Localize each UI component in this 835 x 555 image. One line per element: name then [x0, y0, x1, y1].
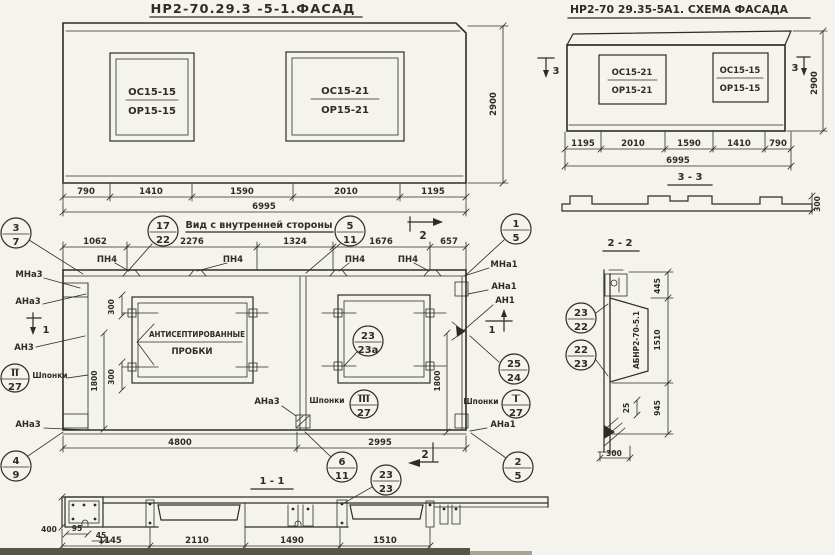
plug-note: АНТИСЕПТИРОВАННЫЕ: [149, 330, 245, 339]
window-code: ОР15-15: [128, 106, 176, 117]
section-label: 2 - 2: [607, 238, 632, 249]
section-label: 3 - 3: [677, 172, 702, 183]
shponki-label: Шпонки: [309, 396, 344, 405]
dim-label: 300: [107, 299, 116, 315]
dim-label: 1800: [433, 371, 442, 392]
window-code: ОР15-15: [720, 84, 761, 94]
dim-label: 1510: [653, 330, 662, 351]
callout-num: 4: [13, 456, 20, 467]
dim-label: 1195: [421, 187, 445, 197]
anchor-label: АНа1: [491, 282, 516, 292]
dim-label: 1490: [280, 536, 304, 546]
dim-label: 790: [769, 139, 787, 149]
rebar-dot: [341, 522, 344, 525]
inner-view-title: Вид с внутренней стороны: [186, 220, 333, 231]
callout-num: 27: [8, 382, 22, 393]
anchor-label: МНа1: [490, 260, 517, 270]
rebar-dot: [455, 508, 458, 511]
callout-num: 3: [13, 223, 20, 234]
callout-num: 2: [515, 457, 522, 468]
dim-label: 1800: [90, 371, 99, 392]
rebar-dot: [94, 518, 97, 521]
facade-schema-title: НР2-70 29.35-5А1. СХЕМА ФАСАДА: [570, 4, 789, 16]
rebar-dot: [72, 504, 75, 507]
dim-label: 6995: [666, 156, 690, 166]
dim-label: 25: [622, 403, 631, 413]
dim-label: 1145: [98, 536, 122, 546]
window-code: ОС15-21: [612, 68, 653, 78]
plug-note: ПРОБКИ: [171, 347, 212, 357]
anchor-label: АНа1: [490, 420, 515, 430]
dim-label: 300: [813, 196, 822, 212]
rebar-dot: [149, 522, 152, 525]
dim-label: 2900: [810, 71, 820, 95]
callout-num: 24: [507, 373, 521, 384]
callout-num: 9: [13, 470, 20, 481]
callout-num: 11: [335, 471, 349, 482]
dim-label: 4800: [168, 438, 192, 448]
cut-label: 1: [489, 325, 496, 336]
callout-num: 5: [347, 221, 354, 232]
cut-label: 1: [43, 325, 50, 336]
dim-label: 400: [41, 525, 57, 534]
scan-band-light: [470, 551, 532, 555]
callout-num: 23: [379, 484, 393, 495]
rebar-dot: [292, 508, 295, 511]
window-code: ОС15-21: [321, 86, 369, 97]
rebar-dot: [443, 508, 446, 511]
cut-label: 3: [553, 66, 560, 77]
callout-num: 5: [515, 471, 522, 482]
dim-label: 1324: [283, 237, 307, 247]
dim-label: 2110: [185, 536, 209, 546]
callout-num: 23: [361, 331, 375, 342]
dim-label: 657: [440, 237, 458, 247]
dim-label: 790: [77, 187, 95, 197]
dim-label: 95: [72, 524, 82, 533]
dim-label: 2900: [489, 92, 499, 116]
anchor-label: АН1: [495, 296, 515, 306]
callout-num: 23: [574, 359, 588, 370]
dim-label: 300: [107, 369, 116, 385]
callout-num: 25: [507, 359, 521, 370]
callout-num: 7: [13, 237, 20, 248]
rebar-dot: [94, 504, 97, 507]
dim-label: 445: [653, 278, 662, 294]
dim-label: 1410: [139, 187, 163, 197]
callout-num: 27: [509, 408, 523, 419]
scan-band-dark: [0, 548, 470, 555]
dim-label: 2276: [180, 237, 204, 247]
callout-num: 22: [574, 322, 588, 333]
dim-label: 1510: [373, 536, 397, 546]
dim-label: 1676: [369, 237, 393, 247]
rebar-dot: [341, 503, 344, 506]
window-code: ОР15-21: [321, 105, 369, 116]
dim-label: 1590: [230, 187, 254, 197]
anchor-label: АНа3: [254, 397, 279, 407]
anchor-label: МНа3: [15, 270, 42, 280]
window-code: ОС15-15: [720, 66, 761, 76]
dim-label: 1062: [83, 237, 107, 247]
cut-label: 3: [792, 63, 799, 74]
anchor-label: АН3: [14, 343, 34, 353]
dim-label: 2010: [334, 187, 358, 197]
dim-label: 6995: [252, 202, 276, 212]
dim-label: 1590: [677, 139, 701, 149]
cut-label: 2: [421, 449, 428, 461]
rebar-dot: [149, 503, 152, 506]
dim-label: 1195: [571, 139, 595, 149]
callout-num: 1: [513, 219, 520, 230]
drawing-sheet: НР2-70.29.3 -5-1.ФАСАД ОС15-15 ОР15-15 О…: [0, 0, 835, 555]
callout-num: 6: [339, 457, 346, 468]
blueprint-canvas: НР2-70.29.3 -5-1.ФАСАД ОС15-15 ОР15-15 О…: [0, 0, 835, 555]
section-label: 1 - 1: [259, 476, 284, 487]
dim-label: 300: [606, 449, 622, 458]
callout-num: 27: [357, 408, 371, 419]
paper-background: [0, 0, 835, 555]
callout-num: 22: [156, 235, 170, 246]
callout-num: II: [11, 368, 18, 379]
callout-num: 23: [379, 470, 393, 481]
rebar-dot: [429, 504, 432, 507]
loop-label: ПН4: [97, 255, 117, 265]
callout-num: 17: [156, 221, 170, 232]
window-code: ОС15-15: [128, 87, 176, 98]
anchor-label: АНа3: [15, 420, 40, 430]
cut-label: 2: [419, 230, 426, 242]
rebar-dot: [72, 518, 75, 521]
callout-num: III: [358, 394, 369, 405]
callout-num: I: [514, 394, 518, 405]
callout-num: 23: [574, 308, 588, 319]
facade-left-title: НР2-70.29.3 -5-1.ФАСАД: [151, 2, 356, 16]
anchor-label: АНа3: [15, 297, 40, 307]
callout-num: 22: [574, 345, 588, 356]
window-code: ОР15-21: [612, 86, 653, 96]
callout-num: 23а: [358, 345, 379, 356]
part-label: АБНР2-70-5.1: [632, 311, 641, 369]
rebar-dot: [83, 504, 86, 507]
callout-num: 11: [343, 235, 357, 246]
dim-label: 2995: [368, 438, 392, 448]
dim-label: 1410: [727, 139, 751, 149]
shponki-label: Шпонки: [32, 371, 67, 380]
shponki-label: Шпонки: [463, 397, 498, 406]
callout-num: 5: [513, 233, 520, 244]
dim-label: 945: [653, 400, 662, 416]
dim-label: 2010: [621, 139, 645, 149]
rebar-dot: [307, 508, 310, 511]
